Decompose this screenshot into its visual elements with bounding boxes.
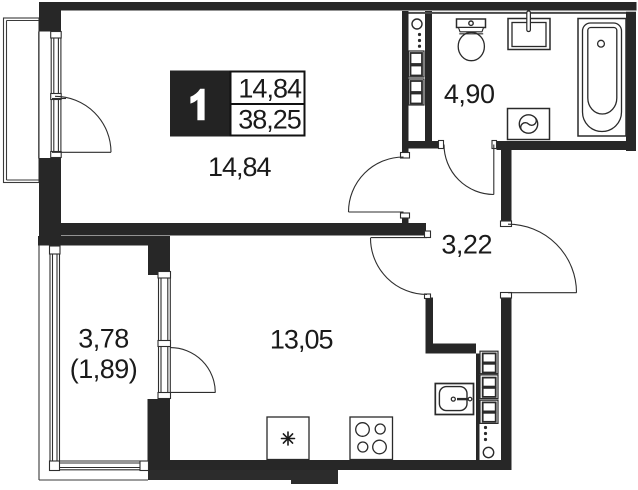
svg-text:(1,89): (1,89): [70, 354, 138, 384]
svg-text:14,84: 14,84: [238, 73, 302, 103]
svg-text:38,25: 38,25: [238, 105, 301, 135]
svg-text:3,22: 3,22: [441, 230, 492, 260]
svg-text:4,90: 4,90: [444, 79, 495, 109]
svg-text:13,05: 13,05: [270, 325, 333, 355]
svg-text:3,78: 3,78: [78, 324, 129, 354]
svg-text:14,84: 14,84: [208, 152, 272, 182]
